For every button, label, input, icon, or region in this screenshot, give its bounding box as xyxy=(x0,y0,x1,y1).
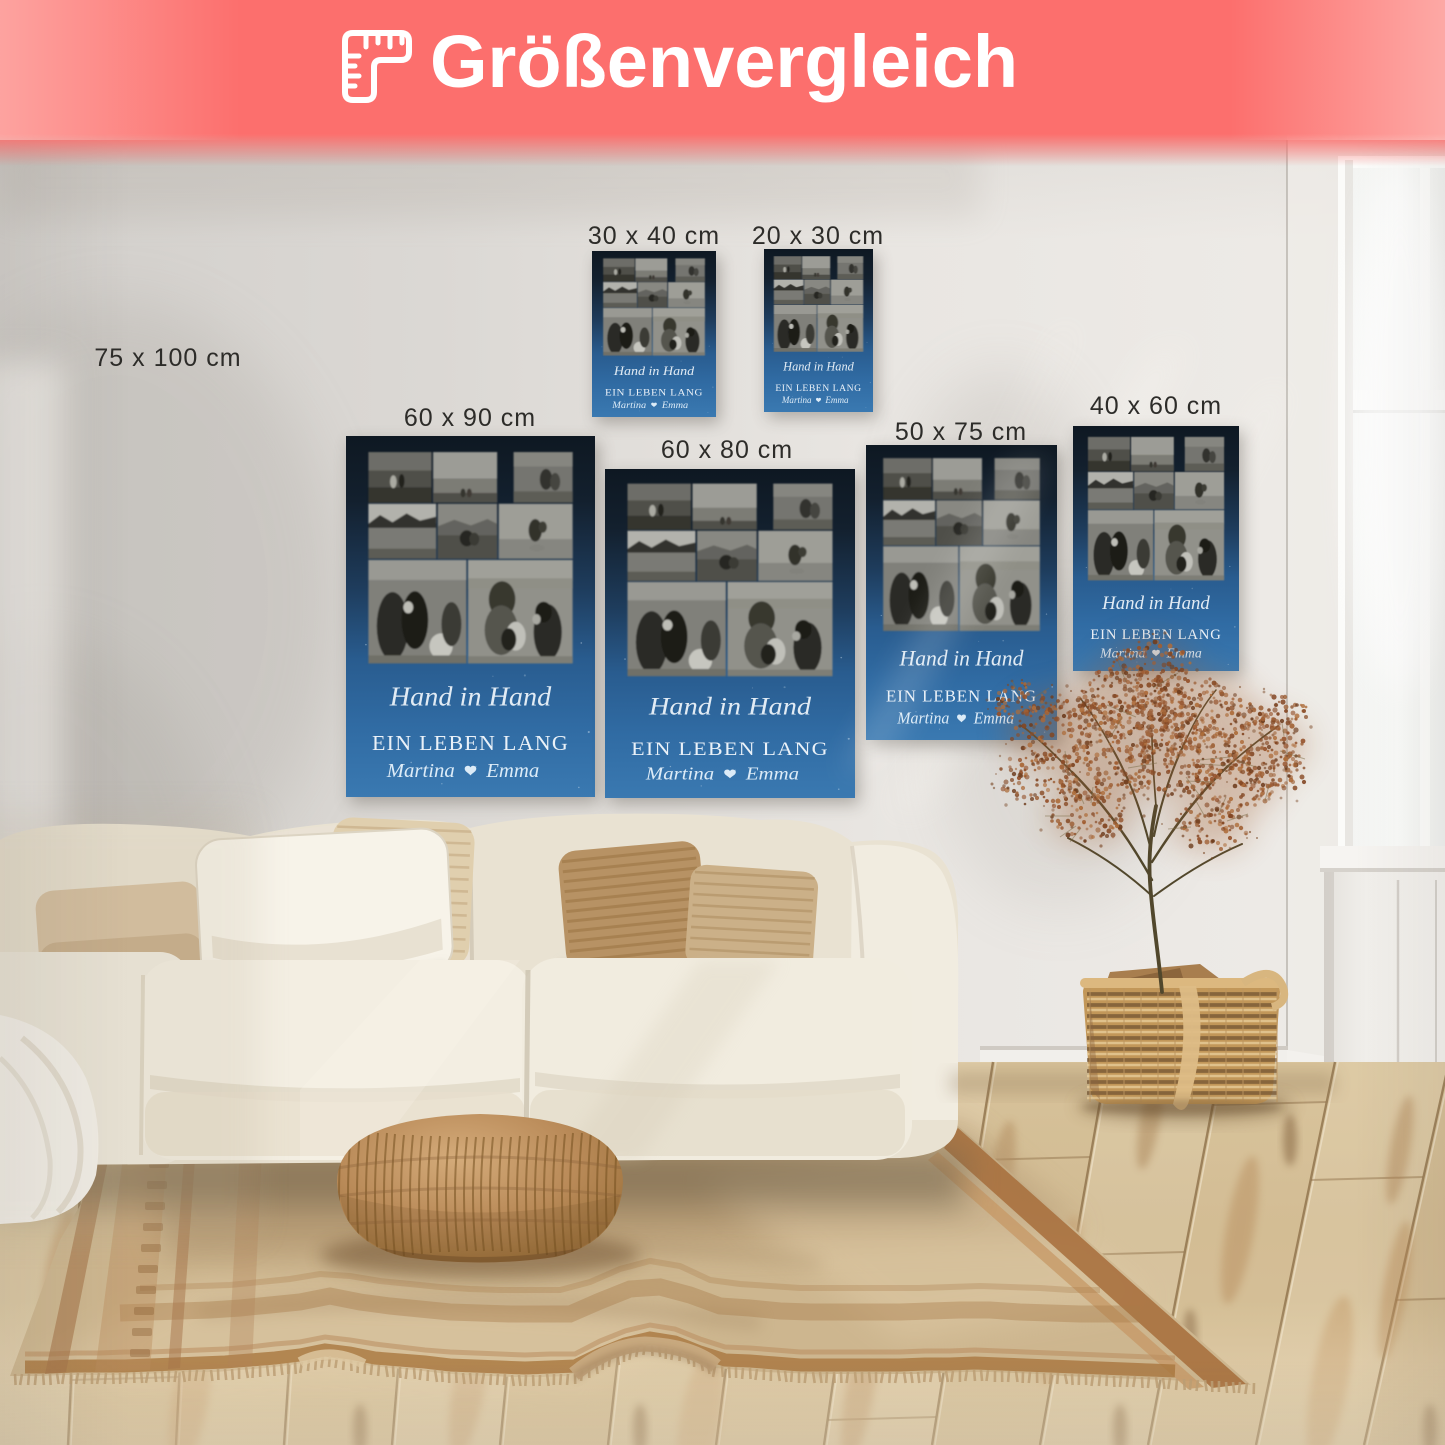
svg-text:50 x 75 cm: 50 x 75 cm xyxy=(895,418,1027,446)
svg-text:Größenvergleich: Größenvergleich xyxy=(430,20,1018,103)
svg-text:30 x 40 cm: 30 x 40 cm xyxy=(588,222,720,250)
svg-text:40 x 60 cm: 40 x 60 cm xyxy=(1090,392,1222,420)
svg-text:60 x 80 cm: 60 x 80 cm xyxy=(661,436,793,464)
svg-text:20 x 30 cm: 20 x 30 cm xyxy=(752,222,884,250)
svg-text:60 x 90 cm: 60 x 90 cm xyxy=(404,404,536,432)
